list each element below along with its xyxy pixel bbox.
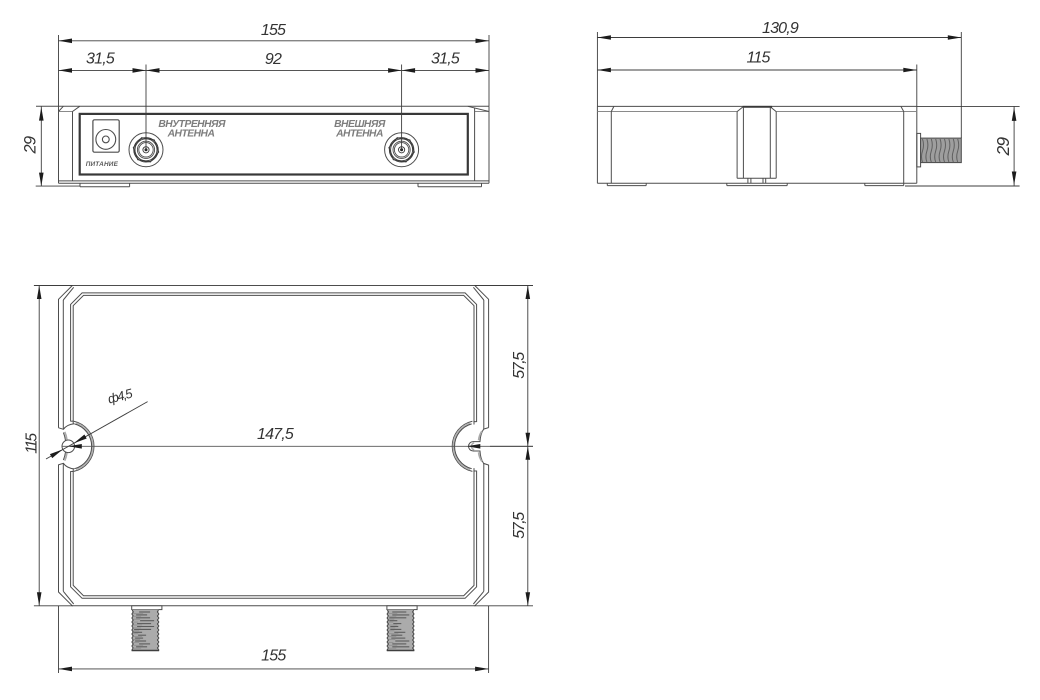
svg-text:147,5: 147,5 [257, 426, 294, 443]
svg-text:31,5: 31,5 [431, 51, 460, 68]
svg-text:115: 115 [23, 433, 40, 454]
svg-text:29: 29 [22, 136, 40, 154]
svg-text:АНТЕННА: АНТЕННА [335, 128, 383, 139]
svg-text:115: 115 [746, 50, 770, 67]
svg-text:57,5: 57,5 [511, 352, 528, 379]
svg-text:АНТЕННА: АНТЕННА [167, 128, 215, 139]
svg-text:155: 155 [261, 22, 286, 39]
svg-text:155: 155 [261, 648, 286, 665]
svg-text:31,5: 31,5 [86, 51, 115, 68]
svg-text:92: 92 [265, 51, 282, 68]
svg-text:ПИТАНИЕ: ПИТАНИЕ [86, 161, 119, 168]
svg-text:130,9: 130,9 [762, 20, 799, 37]
svg-text:57,5: 57,5 [511, 512, 528, 539]
svg-text:29: 29 [993, 137, 1013, 157]
